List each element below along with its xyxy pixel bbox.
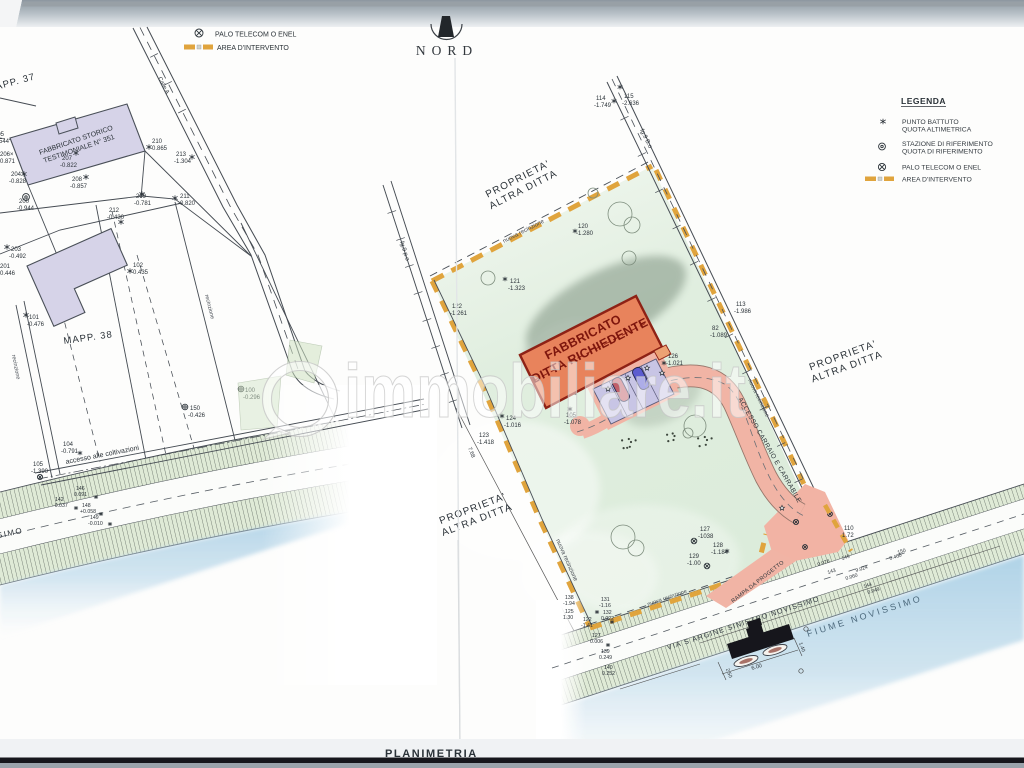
svg-text:-0.010: -0.010 — [88, 521, 103, 527]
svg-text:201: 201 — [0, 264, 11, 270]
svg-text:LEGENDA: LEGENDA — [901, 96, 946, 106]
svg-text:114: 114 — [596, 96, 606, 102]
svg-text:-0.822: -0.822 — [60, 163, 78, 169]
svg-text:-0.781: -0.781 — [134, 201, 152, 207]
svg-text:-0.820: -0.820 — [178, 201, 196, 207]
svg-text:0.006: 0.006 — [590, 639, 603, 645]
svg-text:1.30: 1.30 — [563, 615, 573, 621]
svg-text:-1.16: -1.16 — [599, 603, 611, 609]
svg-text:-1038: -1038 — [698, 534, 714, 540]
svg-text:127: 127 — [700, 527, 711, 533]
svg-text:-1.261: -1.261 — [450, 311, 468, 317]
svg-text:-0.544: -0.544 — [0, 139, 10, 145]
svg-text:PALO TELECOM O ENEL: PALO TELECOM O ENEL — [215, 32, 297, 39]
svg-text:-0.492: -0.492 — [9, 254, 27, 260]
svg-text:208: 208 — [72, 177, 83, 183]
svg-text:-0.446: -0.446 — [0, 271, 16, 277]
svg-text:-1.00: -1.00 — [687, 561, 701, 567]
svg-text:0.252: 0.252 — [602, 671, 615, 677]
svg-text:207: 207 — [62, 156, 73, 162]
svg-text:-1.749: -1.749 — [594, 103, 612, 109]
svg-text:-1.304: -1.304 — [174, 159, 192, 165]
svg-text:129: 129 — [689, 554, 700, 560]
svg-text:-1.41: -1.41 — [581, 623, 593, 629]
svg-text:-0.871: -0.871 — [0, 159, 16, 165]
svg-text:-0.828: -0.828 — [9, 179, 27, 185]
svg-text:AREA D'INTERVENTO: AREA D'INTERVENTO — [217, 45, 289, 52]
svg-text:-1.323: -1.323 — [508, 286, 526, 292]
svg-text:205: 205 — [0, 132, 5, 138]
svg-text:-0.476: -0.476 — [27, 322, 45, 328]
svg-text:-1.418: -1.418 — [477, 440, 495, 446]
svg-text:NORD: NORD — [416, 43, 478, 58]
svg-text:immobiliare.it: immobiliare.it — [344, 349, 746, 434]
svg-text:210: 210 — [152, 139, 163, 145]
svg-text:-0.944: -0.944 — [17, 206, 35, 212]
svg-text:-2.636: -2.636 — [622, 101, 640, 107]
svg-text:213: 213 — [176, 152, 187, 158]
svg-text:-1.390: -1.390 — [31, 469, 49, 475]
svg-text:212: 212 — [109, 208, 120, 214]
svg-text:0.249: 0.249 — [599, 655, 612, 661]
svg-text:0.091: 0.091 — [74, 492, 87, 498]
svg-text:211: 211 — [180, 194, 190, 200]
svg-text:203: 203 — [11, 247, 22, 253]
svg-text:AREA D'INTERVENTO: AREA D'INTERVENTO — [902, 177, 972, 184]
svg-text:204: 204 — [11, 172, 22, 178]
svg-text:120: 120 — [578, 224, 589, 230]
svg-text:115: 115 — [624, 94, 634, 100]
svg-text:206×: 206× — [0, 152, 14, 158]
svg-text:QUOTA DI RIFERIMENTO: QUOTA DI RIFERIMENTO — [902, 149, 983, 156]
svg-text:-0.430: -0.430 — [107, 215, 125, 221]
svg-text:105: 105 — [33, 462, 44, 468]
svg-text:-0.435: -0.435 — [131, 270, 149, 276]
svg-text:102: 102 — [133, 263, 144, 269]
svg-text:209: 209 — [136, 194, 147, 200]
svg-text:-0.791: -0.791 — [61, 449, 79, 455]
svg-text:113: 113 — [736, 302, 746, 308]
svg-text:-0.037: -0.037 — [53, 503, 68, 509]
svg-text:PALO TELECOM O ENEL: PALO TELECOM O ENEL — [902, 165, 981, 172]
svg-text:-1.94: -1.94 — [563, 601, 575, 607]
svg-text:110: 110 — [844, 526, 854, 532]
svg-text:-1.280: -1.280 — [576, 231, 594, 237]
svg-text:1.72: 1.72 — [842, 533, 854, 539]
svg-text:-1.089: -1.089 — [710, 333, 728, 339]
svg-text:104: 104 — [63, 442, 74, 448]
svg-text:-0.857: -0.857 — [70, 184, 88, 190]
svg-text:-0.865: -0.865 — [150, 146, 168, 152]
svg-text:82: 82 — [712, 326, 719, 332]
svg-text:101: 101 — [29, 315, 40, 321]
svg-text:QUOTA ALTIMETRICA: QUOTA ALTIMETRICA — [902, 127, 972, 134]
svg-text:150: 150 — [190, 406, 201, 412]
svg-text:121: 121 — [510, 279, 521, 285]
svg-text:STAZIONE DI RIFERIMENTO: STAZIONE DI RIFERIMENTO — [902, 141, 993, 148]
svg-text:PUNTO BATTUTO: PUNTO BATTUTO — [902, 119, 959, 126]
svg-text:128: 128 — [713, 543, 724, 549]
svg-text:-1.986: -1.986 — [734, 309, 752, 315]
svg-text:-0.426: -0.426 — [188, 413, 206, 419]
